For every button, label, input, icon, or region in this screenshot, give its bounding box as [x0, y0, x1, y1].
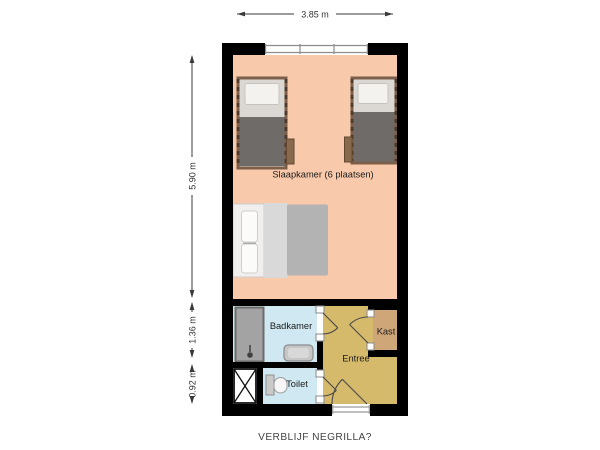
- dim-top-arrow-left: [237, 12, 245, 17]
- single-bed-1: [238, 78, 294, 168]
- dim-toilet-label: 0.92 m: [188, 370, 198, 398]
- bed2-ladder: [345, 137, 353, 162]
- dim-badkamer-arrow-up: [190, 302, 195, 310]
- double-bed: [233, 203, 328, 278]
- floorplan-drawing: 3.85 m 5.90 m 1.36 m 0.92 m Slaapkamer (…: [0, 0, 600, 450]
- bed2-blanket: [354, 112, 395, 162]
- dim-main-label: 5.90 m: [188, 162, 198, 190]
- double-bed-blanket: [287, 205, 328, 276]
- toilet-bowl: [274, 378, 287, 394]
- wall-entree-mid: [317, 341, 323, 370]
- wall-entree-upper: [317, 299, 323, 306]
- badkamer-door-jamb-top: [316, 306, 324, 313]
- shaft: [234, 369, 256, 403]
- dimension-left-badkamer: 1.36 m: [188, 302, 198, 358]
- sink-basin: [288, 348, 309, 358]
- double-bed-sheet: [264, 203, 287, 278]
- toilet-tank: [266, 375, 274, 395]
- dimension-left-toilet: 0.92 m: [188, 364, 198, 404]
- bed1-ladder: [287, 139, 295, 164]
- window: [265, 43, 368, 55]
- single-bed-2: [345, 78, 397, 163]
- entrance-threshold: [332, 404, 370, 416]
- dim-top-arrow-right: [385, 12, 393, 17]
- dim-main-arrow-up: [190, 55, 195, 63]
- bed2-pillow: [358, 84, 388, 104]
- wall-kast-bottom: [368, 350, 397, 357]
- dim-badkamer-arrow-down: [190, 350, 195, 358]
- floorplan-page: 3.85 m 5.90 m 1.36 m 0.92 m Slaapkamer (…: [0, 0, 600, 450]
- dim-top-label: 3.85 m: [301, 10, 329, 20]
- wall-bottom-left: [222, 404, 332, 416]
- dim-badkamer-label: 1.36 m: [188, 316, 198, 344]
- wall-shaft-divider: [257, 368, 263, 404]
- double-bed-pillow-bottom: [242, 244, 258, 273]
- toilet-door-jamb-bottom: [316, 396, 324, 403]
- entree-label: Entree: [342, 354, 369, 364]
- dim-main-arrow-down: [190, 290, 195, 298]
- bed1-pillow: [245, 84, 279, 105]
- kast-door-jamb-bottom: [367, 343, 374, 350]
- plan-caption: VERBLIJF NEGRILLA?: [258, 432, 372, 443]
- wall-right: [397, 43, 408, 416]
- wall-left: [222, 43, 233, 416]
- slaapkamer-label: Slaapkamer (6 plaatsen): [272, 170, 373, 180]
- wall-kast-top: [368, 299, 397, 310]
- dimension-left-main: 5.90 m: [188, 55, 198, 298]
- badkamer-door-jamb-bottom: [316, 334, 324, 341]
- wall-badkamer-toilet: [222, 362, 323, 368]
- double-bed-pillow-top: [242, 211, 258, 242]
- shower-head-icon: [247, 352, 253, 358]
- badkamer-label: Badkamer: [270, 321, 312, 331]
- kast-door-jamb-top: [367, 310, 374, 317]
- toilet-door-jamb-top: [316, 370, 324, 377]
- entrance-opening: [332, 404, 370, 416]
- wall-bottom-right: [370, 404, 408, 416]
- bed1-blanket: [240, 117, 285, 166]
- kast-label: Kast: [377, 327, 396, 337]
- toilet-label: Toilet: [286, 379, 308, 389]
- window-opening: [265, 43, 368, 55]
- dimension-top-width: 3.85 m: [237, 10, 393, 20]
